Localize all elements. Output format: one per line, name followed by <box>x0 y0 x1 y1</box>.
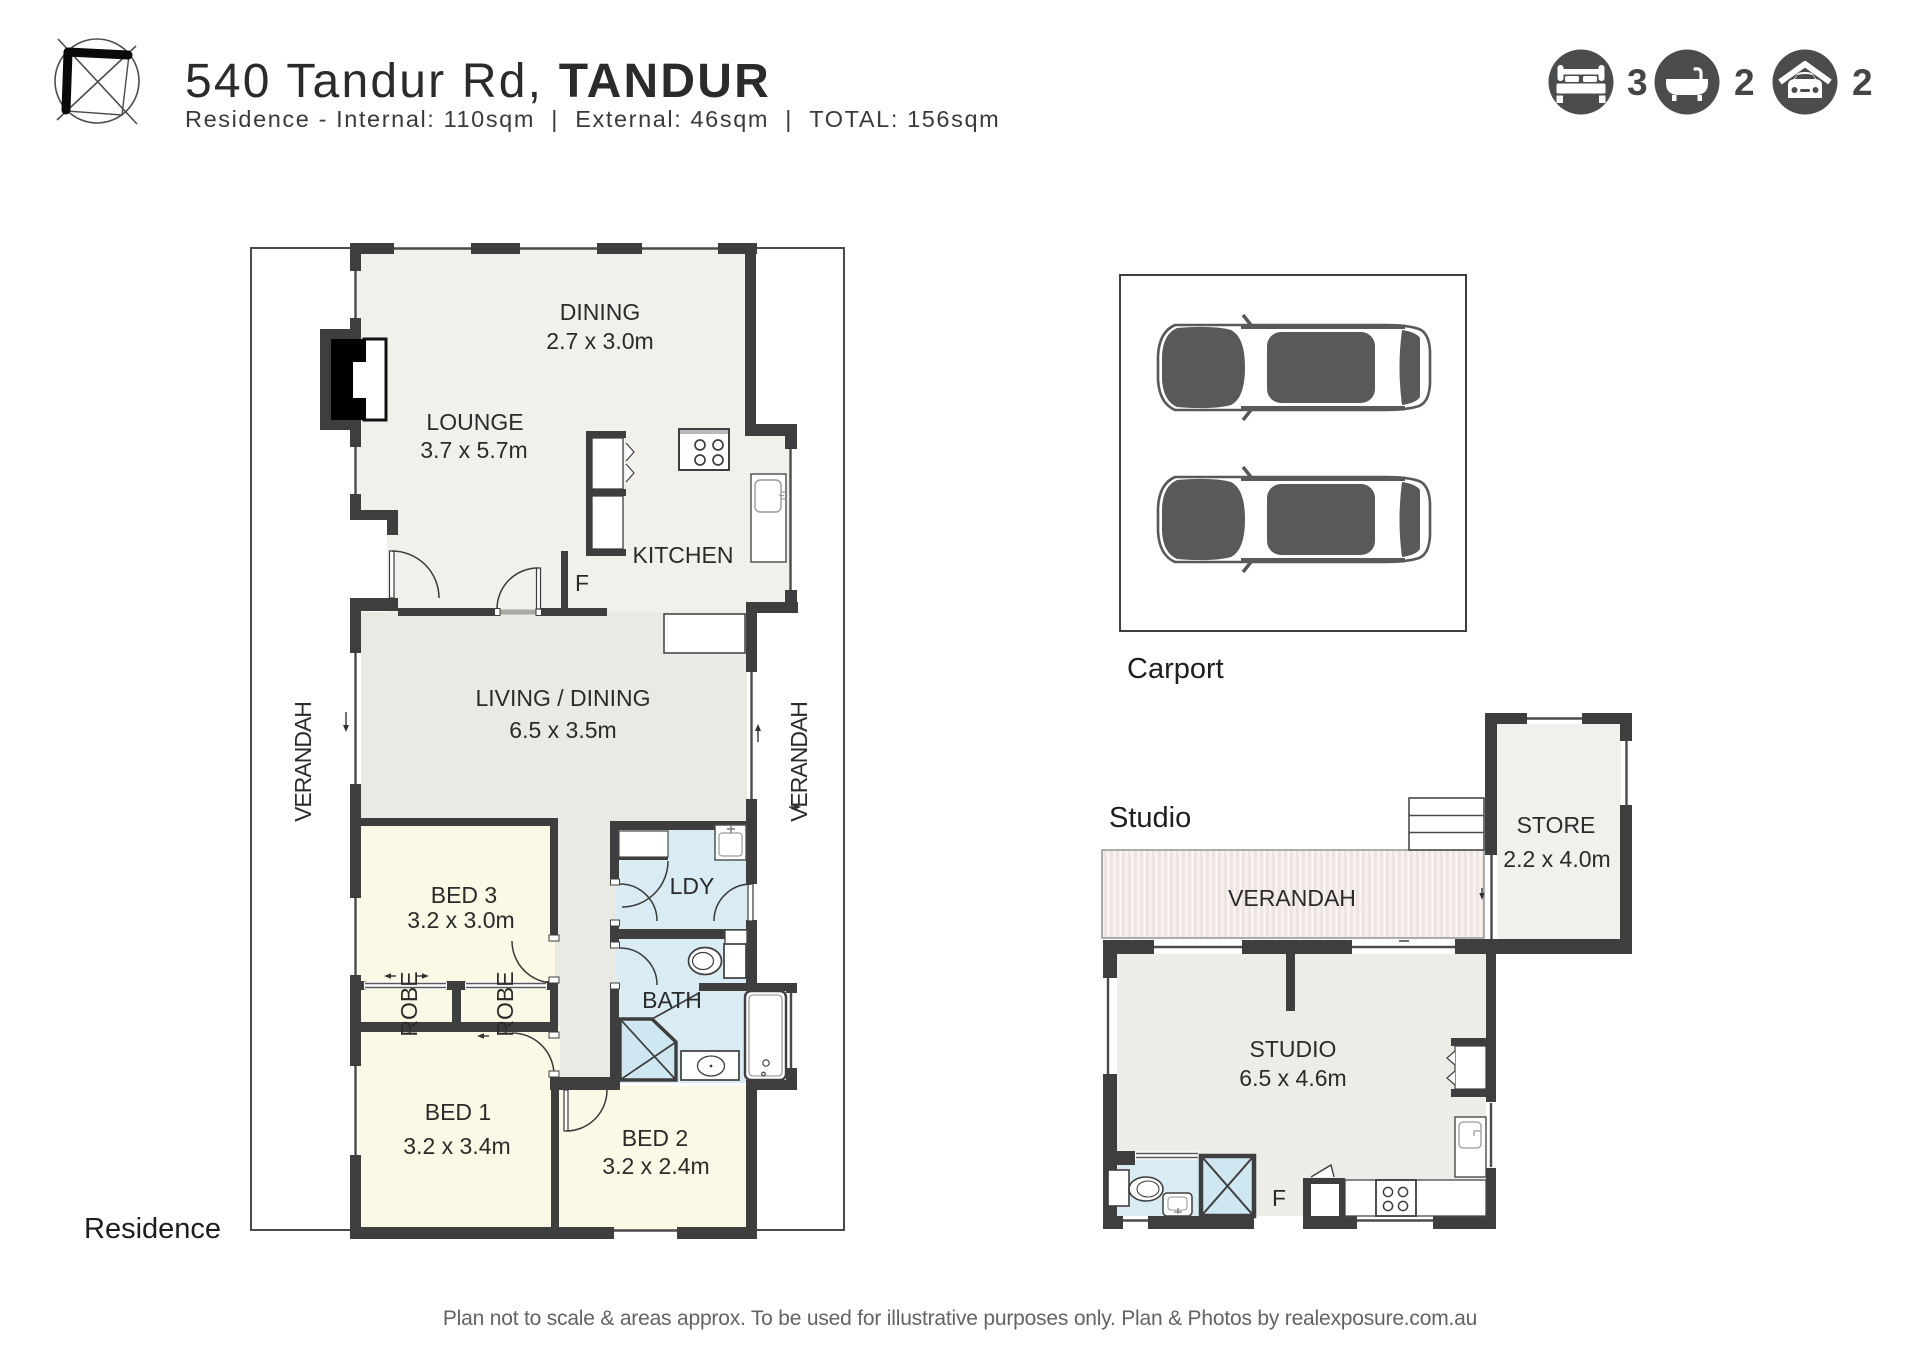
svg-text:LOUNGE: LOUNGE <box>426 409 523 435</box>
svg-text:BED 1: BED 1 <box>425 1099 491 1125</box>
svg-text:6.5 x 4.6m: 6.5 x 4.6m <box>1239 1065 1346 1091</box>
svg-text:540 Tandur Rd, TANDUR: 540 Tandur Rd, TANDUR <box>185 55 771 108</box>
svg-text:KITCHEN: KITCHEN <box>633 542 734 568</box>
svg-text:STORE: STORE <box>1517 812 1596 838</box>
svg-text:F: F <box>575 570 589 596</box>
svg-text:DINING: DINING <box>560 299 641 325</box>
svg-text:Residence - Internal: 110sqm: Residence - Internal: 110sqm | External:… <box>185 106 1000 132</box>
svg-text:BED 3: BED 3 <box>431 882 497 908</box>
svg-text:ROBE: ROBE <box>492 971 518 1036</box>
svg-text:3.2 x 3.0m: 3.2 x 3.0m <box>407 907 514 933</box>
svg-text:VERANDAH: VERANDAH <box>786 702 812 822</box>
svg-text:BATH: BATH <box>642 987 702 1013</box>
svg-text:6.5 x 3.5m: 6.5 x 3.5m <box>509 717 616 743</box>
svg-text:STUDIO: STUDIO <box>1250 1036 1337 1062</box>
svg-text:2: 2 <box>1852 62 1873 103</box>
svg-text:3: 3 <box>1627 62 1648 103</box>
svg-text:3.2 x 2.4m: 3.2 x 2.4m <box>602 1153 709 1179</box>
svg-text:3.2 x 3.4m: 3.2 x 3.4m <box>403 1133 510 1159</box>
svg-text:Carport: Carport <box>1127 653 1224 685</box>
svg-text:LIVING / DINING: LIVING / DINING <box>475 685 650 711</box>
svg-text:BED 2: BED 2 <box>622 1125 688 1151</box>
svg-text:Residence: Residence <box>84 1213 221 1245</box>
svg-text:3.7 x 5.7m: 3.7 x 5.7m <box>420 437 527 463</box>
svg-text:F: F <box>1272 1185 1286 1211</box>
svg-text:ROBE: ROBE <box>396 971 422 1036</box>
svg-text:2.7 x 3.0m: 2.7 x 3.0m <box>546 328 653 354</box>
svg-text:Studio: Studio <box>1109 802 1191 834</box>
svg-text:Plan not to scale & areas appr: Plan not to scale & areas approx. To be … <box>443 1307 1477 1330</box>
svg-text:2.2 x 4.0m: 2.2 x 4.0m <box>1503 846 1610 872</box>
svg-text:VERANDAH: VERANDAH <box>1228 885 1356 911</box>
svg-text:LDY: LDY <box>670 873 715 899</box>
svg-text:2: 2 <box>1734 62 1755 103</box>
svg-text:VERANDAH: VERANDAH <box>290 702 316 822</box>
